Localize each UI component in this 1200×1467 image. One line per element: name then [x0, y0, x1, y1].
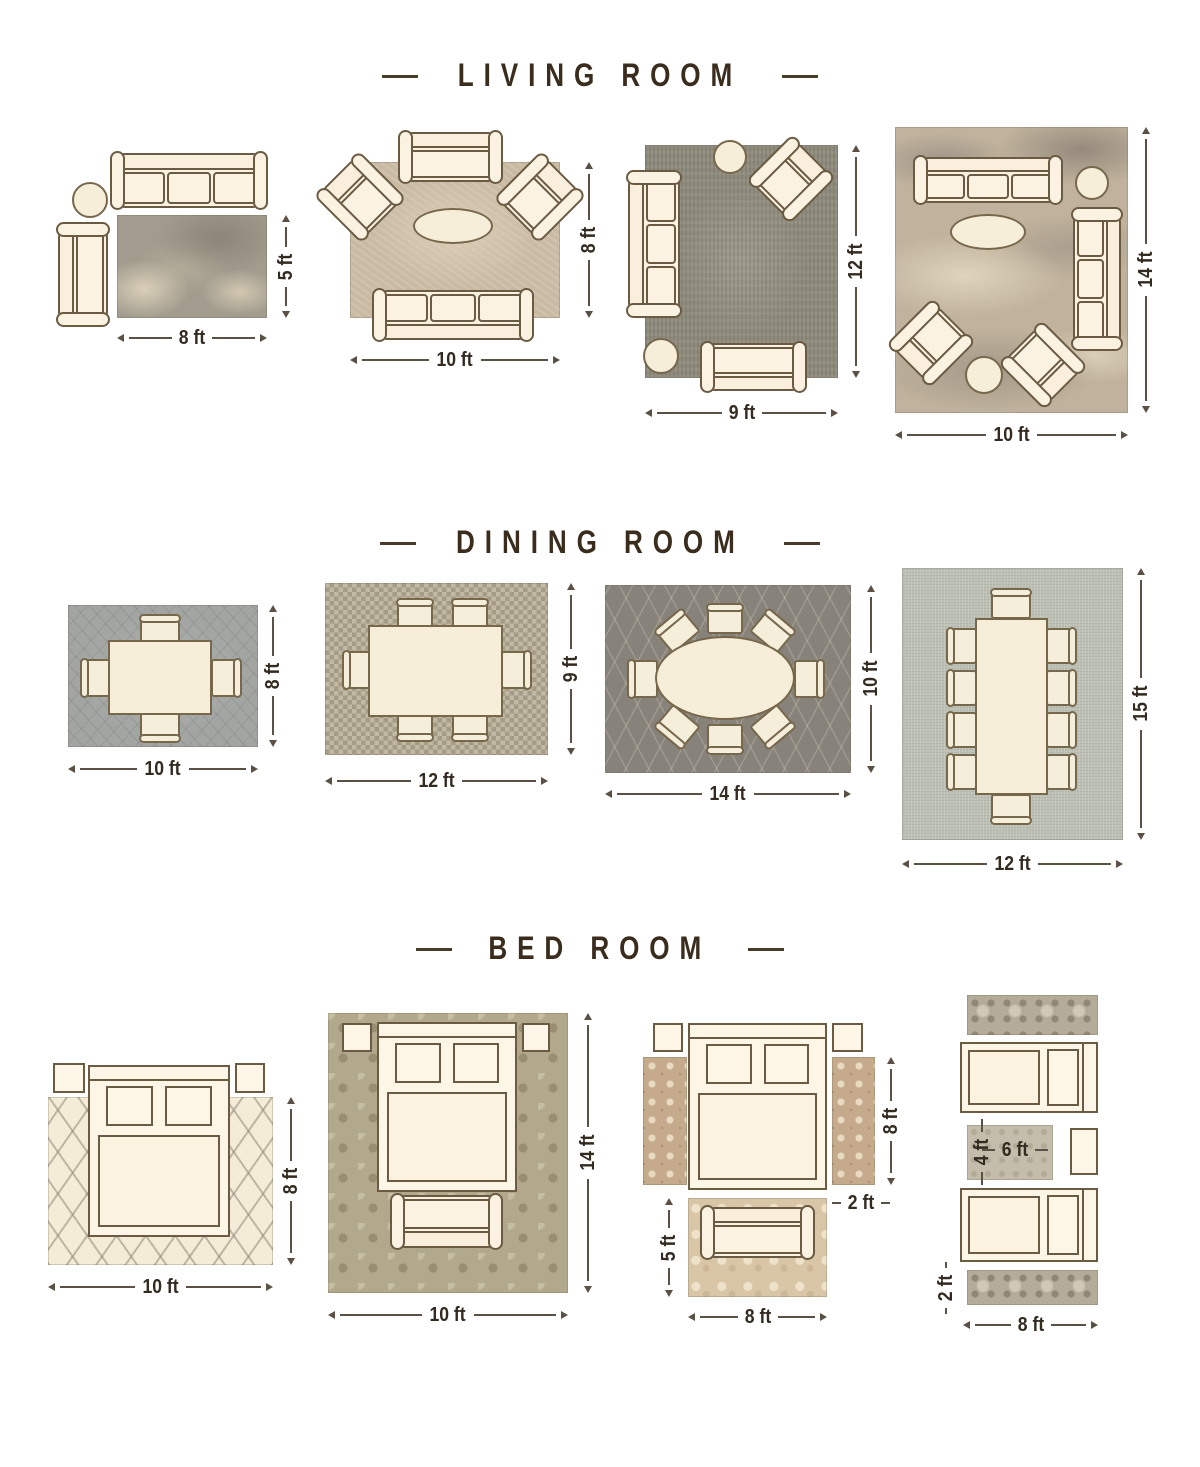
- round-side-table: [1075, 166, 1109, 200]
- pillow: [395, 1043, 441, 1083]
- bed: [688, 1023, 827, 1190]
- dining-chair: [949, 754, 977, 790]
- width-dimension: 8 ft: [117, 326, 267, 350]
- height-dimension: 5 ft: [274, 215, 298, 318]
- oval-coffee-table: [950, 214, 1026, 250]
- dining-room-title: DINING ROOM: [0, 527, 1200, 560]
- pillow: [1047, 1195, 1079, 1255]
- title-dash: [748, 948, 784, 951]
- headboard: [1082, 1044, 1096, 1111]
- nightstand: [522, 1023, 550, 1052]
- twin-bed: [960, 1042, 1098, 1113]
- twin-bed: [960, 1188, 1098, 1262]
- loveseat: [700, 343, 807, 391]
- height-dimension: 14 ft: [576, 1013, 600, 1293]
- headboard: [90, 1067, 228, 1081]
- blanket: [698, 1093, 817, 1180]
- dining-chair: [1046, 754, 1074, 790]
- pillow: [706, 1044, 752, 1084]
- pillow: [764, 1044, 810, 1084]
- dining-chair: [707, 724, 743, 752]
- title-dash: [380, 542, 416, 545]
- pillow: [1047, 1049, 1079, 1106]
- three-seat-sofa: [913, 157, 1063, 203]
- dining-chair: [707, 606, 743, 634]
- sofa-body: [58, 229, 108, 320]
- section-title-text: LIVING ROOM: [458, 58, 742, 95]
- living-room-title: LIVING ROOM: [0, 60, 1200, 93]
- dining-chair: [949, 712, 977, 748]
- height-dimension: 8 ft: [261, 605, 285, 747]
- round-side-table: [72, 182, 108, 218]
- sofa-seats: [119, 170, 259, 206]
- title-dash: [782, 75, 818, 78]
- width-dimension: 14 ft: [605, 782, 851, 806]
- height-dimension: 15 ft: [1129, 568, 1153, 840]
- height-dimension: 9 ft: [559, 583, 583, 755]
- area-rug: [117, 215, 267, 318]
- dining-chair: [140, 712, 180, 740]
- blanket: [968, 1050, 1040, 1105]
- dining-chair: [949, 628, 977, 664]
- dining-chair: [1046, 670, 1074, 706]
- width-dimension: 10 ft: [350, 348, 560, 372]
- bed-room-layout-2: 14 ft 10 ft: [320, 1000, 610, 1335]
- blanket: [387, 1092, 507, 1182]
- width-dimension: 10 ft: [328, 1303, 568, 1327]
- height-dimension: 8 ft: [279, 1097, 303, 1265]
- round-side-table: [965, 356, 1003, 394]
- runner-rug: [643, 1057, 687, 1185]
- three-seat-sofa: [110, 153, 268, 208]
- dining-chair: [1046, 712, 1074, 748]
- width-dimension: 10 ft: [895, 423, 1128, 447]
- runner-length-dimension: 8 ft: [963, 1313, 1098, 1337]
- runner-length-dimension: 8 ft: [879, 1057, 903, 1185]
- bench: [700, 1207, 815, 1258]
- width-dimension: 10 ft: [48, 1275, 273, 1299]
- loveseat: [398, 132, 503, 182]
- sofa-back: [60, 231, 74, 318]
- bed-room-layout-3: 8 ft 2 ft 5 ft 8 ft: [640, 1015, 905, 1330]
- nightstand: [653, 1023, 683, 1052]
- pillow-column: [1044, 1190, 1082, 1260]
- pillow: [106, 1086, 153, 1126]
- round-side-table: [643, 338, 679, 374]
- pillow-row: [90, 1081, 228, 1131]
- section-title-text: BED ROOM: [489, 931, 712, 968]
- living-room-layout-4: 14 ft 10 ft: [885, 115, 1185, 450]
- three-seat-sofa: [628, 170, 680, 318]
- pillow-row: [690, 1039, 825, 1089]
- nightstand: [342, 1023, 372, 1052]
- dining-chair: [794, 660, 822, 698]
- bed: [377, 1022, 517, 1192]
- dining-chair: [211, 659, 239, 697]
- pillow-column: [1044, 1044, 1082, 1111]
- dining-table: [108, 640, 212, 715]
- sofa-back: [119, 155, 259, 170]
- headboard: [379, 1024, 515, 1038]
- bed: [88, 1065, 230, 1237]
- dining-table: [368, 625, 503, 717]
- oval-coffee-table: [413, 208, 493, 244]
- runner-rug: [967, 995, 1098, 1035]
- dining-chair: [949, 670, 977, 706]
- sofa-seats: [74, 231, 106, 318]
- height-dimension: 14 ft: [1134, 127, 1158, 413]
- sofa-arm: [110, 151, 125, 210]
- three-seat-sofa: [372, 290, 534, 340]
- loveseat: [58, 222, 108, 327]
- oval-dining-table: [655, 636, 795, 720]
- foot-rug-width-dimension: 8 ft: [688, 1305, 827, 1329]
- width-dimension: 12 ft: [902, 852, 1123, 876]
- dining-room-layout-3: 10 ft 14 ft: [600, 580, 890, 800]
- title-dash: [382, 75, 418, 78]
- nightstand: [832, 1023, 863, 1052]
- sofa-arm: [253, 151, 268, 210]
- runner-width-dimension: 2 ft: [832, 1191, 890, 1215]
- headboard: [1082, 1190, 1096, 1260]
- dining-chair: [630, 660, 658, 698]
- sofa-body: [117, 153, 261, 208]
- blanket: [968, 1196, 1040, 1254]
- three-seat-sofa: [1073, 207, 1121, 351]
- nightstand: [235, 1063, 265, 1093]
- center-rug-width-dimension: 6 ft: [982, 1138, 1048, 1162]
- bench: [390, 1195, 503, 1248]
- nightstand: [53, 1063, 85, 1093]
- runner-rug: [832, 1057, 875, 1185]
- blanket: [98, 1135, 220, 1227]
- dining-room-layout-4: 15 ft 12 ft: [895, 565, 1165, 880]
- dining-chair: [1046, 628, 1074, 664]
- bed-room-layout-1: 8 ft 10 ft: [40, 1050, 310, 1305]
- dining-room-layout-1: 8 ft 10 ft: [55, 595, 295, 790]
- width-dimension: 12 ft: [325, 769, 548, 793]
- foot-rug-height-dimension: 5 ft: [657, 1198, 681, 1297]
- title-dash: [416, 948, 452, 951]
- title-dash: [784, 542, 820, 545]
- runner-width-dimension: 2 ft: [934, 1262, 958, 1314]
- height-dimension: 12 ft: [844, 145, 868, 378]
- pillow: [453, 1043, 499, 1083]
- section-title-text: DINING ROOM: [456, 525, 745, 562]
- dining-table: [975, 618, 1048, 795]
- height-dimension: 10 ft: [859, 585, 883, 773]
- living-room-layout-2: 8 ft 10 ft: [330, 120, 630, 380]
- width-dimension: 10 ft: [68, 757, 258, 781]
- nightstand: [1070, 1128, 1098, 1175]
- dining-chair: [991, 591, 1031, 619]
- pillow-row: [379, 1038, 515, 1088]
- living-room-layout-3: 12 ft 9 ft: [625, 135, 875, 425]
- living-room-layout-1: 5 ft 8 ft: [50, 140, 320, 352]
- height-dimension: 8 ft: [577, 162, 601, 318]
- dining-room-layout-2: 9 ft 12 ft: [315, 575, 585, 800]
- dining-chair: [501, 651, 529, 689]
- sofa-arm: [56, 222, 110, 237]
- sofa-arm: [56, 312, 110, 327]
- pillow: [165, 1086, 212, 1126]
- width-dimension: 9 ft: [645, 401, 838, 425]
- dining-chair: [991, 794, 1031, 822]
- round-side-table: [713, 140, 747, 174]
- bed-room-title: BED ROOM: [0, 933, 1200, 966]
- bed-room-layout-4: 4 ft 6 ft 2 ft 8 ft: [930, 985, 1190, 1345]
- dining-chair: [83, 659, 111, 697]
- headboard: [690, 1025, 825, 1039]
- runner-rug: [967, 1270, 1098, 1305]
